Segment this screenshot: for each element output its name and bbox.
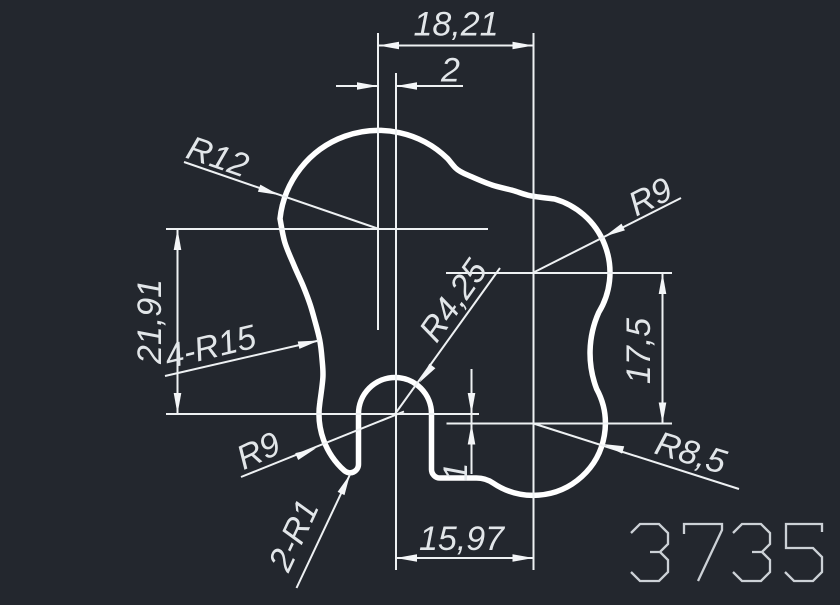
svg-text:17,5: 17,5 xyxy=(620,318,658,384)
svg-text:1: 1 xyxy=(437,463,475,482)
svg-text:18,21: 18,21 xyxy=(413,6,498,44)
svg-text:2: 2 xyxy=(440,52,460,90)
svg-text:15,97: 15,97 xyxy=(419,520,505,558)
